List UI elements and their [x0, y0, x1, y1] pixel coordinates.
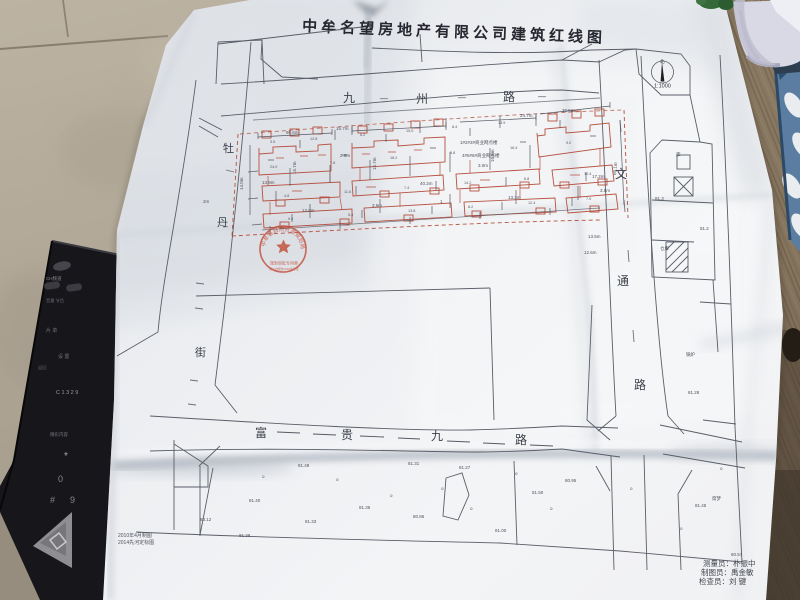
svg-text:15.7m: 15.7m [336, 126, 349, 131]
svg-text:16.8m: 16.8m [490, 149, 495, 162]
svg-text:13.5m: 13.5m [588, 234, 601, 239]
svg-text:80.57: 80.57 [731, 552, 743, 557]
svg-text:12.8m: 12.8m [302, 208, 315, 213]
svg-text:81.40: 81.40 [249, 498, 261, 503]
svg-text:4.8: 4.8 [284, 194, 289, 198]
svg-text:5.8: 5.8 [450, 151, 455, 155]
svg-text:库: 库 [676, 151, 681, 158]
svg-text:81.00: 81.00 [495, 528, 507, 533]
svg-text:98.6m: 98.6m [286, 130, 299, 135]
svg-text:仓库: 仓库 [660, 245, 669, 252]
svg-text:13.8: 13.8 [408, 209, 415, 213]
svg-text:2.8m: 2.8m [340, 153, 350, 158]
svg-text:15.7m: 15.7m [292, 161, 297, 174]
svg-text:81.39: 81.39 [239, 533, 251, 538]
svg-text:12.4: 12.4 [528, 201, 535, 205]
svg-text:九: 九 [431, 429, 443, 443]
svg-text:通: 通 [617, 274, 629, 288]
svg-text:制图员：禹金敏: 制图员：禹金敏 [701, 567, 754, 577]
svg-text:40.2m: 40.2m [420, 181, 433, 186]
svg-text:路: 路 [503, 89, 515, 104]
svg-text:81.2: 81.2 [700, 226, 709, 231]
svg-text:—: — [380, 94, 388, 103]
svg-text:14.0m: 14.0m [239, 177, 244, 190]
svg-text:富: 富 [255, 425, 267, 440]
svg-text:81.27: 81.27 [459, 465, 471, 470]
svg-text:8.4: 8.4 [452, 125, 457, 129]
svg-text:16.4: 16.4 [510, 146, 517, 150]
svg-text:13.9m: 13.9m [262, 180, 275, 185]
svg-text:12.6m: 12.6m [584, 250, 597, 255]
svg-text:丹: 丹 [217, 217, 228, 229]
svg-text:17.2m: 17.2m [592, 174, 605, 179]
svg-text:7.4: 7.4 [404, 186, 409, 190]
svg-text:81.50: 81.50 [532, 490, 544, 495]
svg-text:席梦: 席梦 [712, 495, 721, 502]
svg-text:81.33: 81.33 [305, 519, 317, 524]
svg-text:12.8: 12.8 [310, 137, 317, 141]
svg-text:3.5: 3.5 [270, 140, 275, 144]
svg-text:*: * [64, 451, 68, 462]
svg-text:路: 路 [515, 432, 527, 447]
svg-text:7.0: 7.0 [586, 197, 591, 201]
svg-text:锅炉: 锅炉 [686, 351, 695, 358]
svg-text:24.0: 24.0 [270, 165, 277, 169]
svg-text:9.6: 9.6 [288, 217, 293, 221]
svg-text:规划审批专用章: 规划审批专用章 [270, 260, 298, 266]
svg-text:10.4: 10.4 [584, 172, 591, 176]
svg-text:豫ICP规划2019许可证: 豫ICP规划2019许可证 [269, 266, 299, 271]
svg-text:5.4: 5.4 [348, 213, 353, 217]
svg-text:8.2: 8.2 [468, 205, 473, 209]
svg-text:9: 9 [70, 495, 75, 505]
svg-text:1:1000: 1:1000 [654, 84, 671, 90]
svg-text:返回: 返回 [38, 364, 46, 371]
svg-text:2014先河定标图: 2014先河定标图 [118, 539, 154, 546]
svg-text:牡: 牡 [223, 141, 234, 155]
svg-text:80.86: 80.86 [413, 514, 425, 519]
svg-text:CH频道: CH频道 [46, 275, 62, 282]
svg-text:九: 九 [343, 91, 355, 105]
svg-text:18.2: 18.2 [390, 156, 397, 160]
svg-text:13.9: 13.9 [498, 121, 505, 125]
svg-text:#: # [50, 495, 55, 505]
svg-text:15.7m: 15.7m [372, 157, 377, 170]
svg-text:音量 节目: 音量 节目 [46, 297, 64, 304]
svg-text:6.2: 6.2 [360, 133, 365, 137]
svg-text:24.7m: 24.7m [520, 113, 533, 118]
svg-text:北: 北 [660, 58, 665, 65]
svg-text:3.0m: 3.0m [478, 163, 488, 168]
svg-text:街: 街 [195, 345, 206, 359]
svg-text:80.95: 80.95 [565, 478, 577, 483]
svg-text:路: 路 [634, 377, 646, 392]
svg-text:2010年4月制图: 2010年4月制图 [118, 532, 152, 539]
svg-text:1#2#3#商业网点楼: 1#2#3#商业网点楼 [460, 139, 498, 146]
svg-text:—: — [538, 92, 546, 101]
svg-text:—: — [458, 93, 466, 102]
svg-text:精彩内容: 精彩内容 [50, 431, 68, 438]
svg-text:9.2: 9.2 [566, 141, 571, 145]
svg-text:3.5m: 3.5m [600, 188, 610, 193]
svg-text:测量员：朴振中: 测量员：朴振中 [703, 558, 756, 568]
svg-text:81.28: 81.28 [688, 390, 700, 395]
svg-text:15.0: 15.0 [406, 129, 413, 133]
svg-text:81.36: 81.36 [359, 505, 371, 510]
svg-text:13.2m: 13.2m [508, 195, 521, 200]
svg-text:11.6: 11.6 [344, 190, 351, 194]
svg-text:81.45: 81.45 [695, 503, 707, 508]
svg-text:贵: 贵 [341, 428, 353, 442]
svg-text:检查员：刘 键: 检查员：刘 键 [699, 576, 747, 586]
svg-text:设 置: 设 置 [58, 353, 69, 360]
svg-text:0: 0 [58, 474, 63, 484]
svg-text:7.6: 7.6 [330, 161, 335, 165]
svg-text:81.31: 81.31 [408, 461, 420, 466]
svg-text:81.3: 81.3 [655, 196, 664, 201]
svg-text:83.12: 83.12 [200, 517, 212, 522]
svg-text:州: 州 [416, 92, 428, 106]
svg-text:81.49: 81.49 [298, 463, 310, 468]
svg-text:6.8: 6.8 [524, 177, 529, 181]
svg-text:3.5m: 3.5m [372, 203, 382, 208]
svg-text:文: 文 [615, 166, 627, 181]
svg-text:片 单: 片 单 [46, 327, 57, 334]
svg-text:14.2: 14.2 [464, 181, 471, 185]
svg-text:C 1 3 2 9: C 1 3 2 9 [56, 390, 78, 396]
svg-text:30.5m: 30.5m [562, 108, 575, 113]
